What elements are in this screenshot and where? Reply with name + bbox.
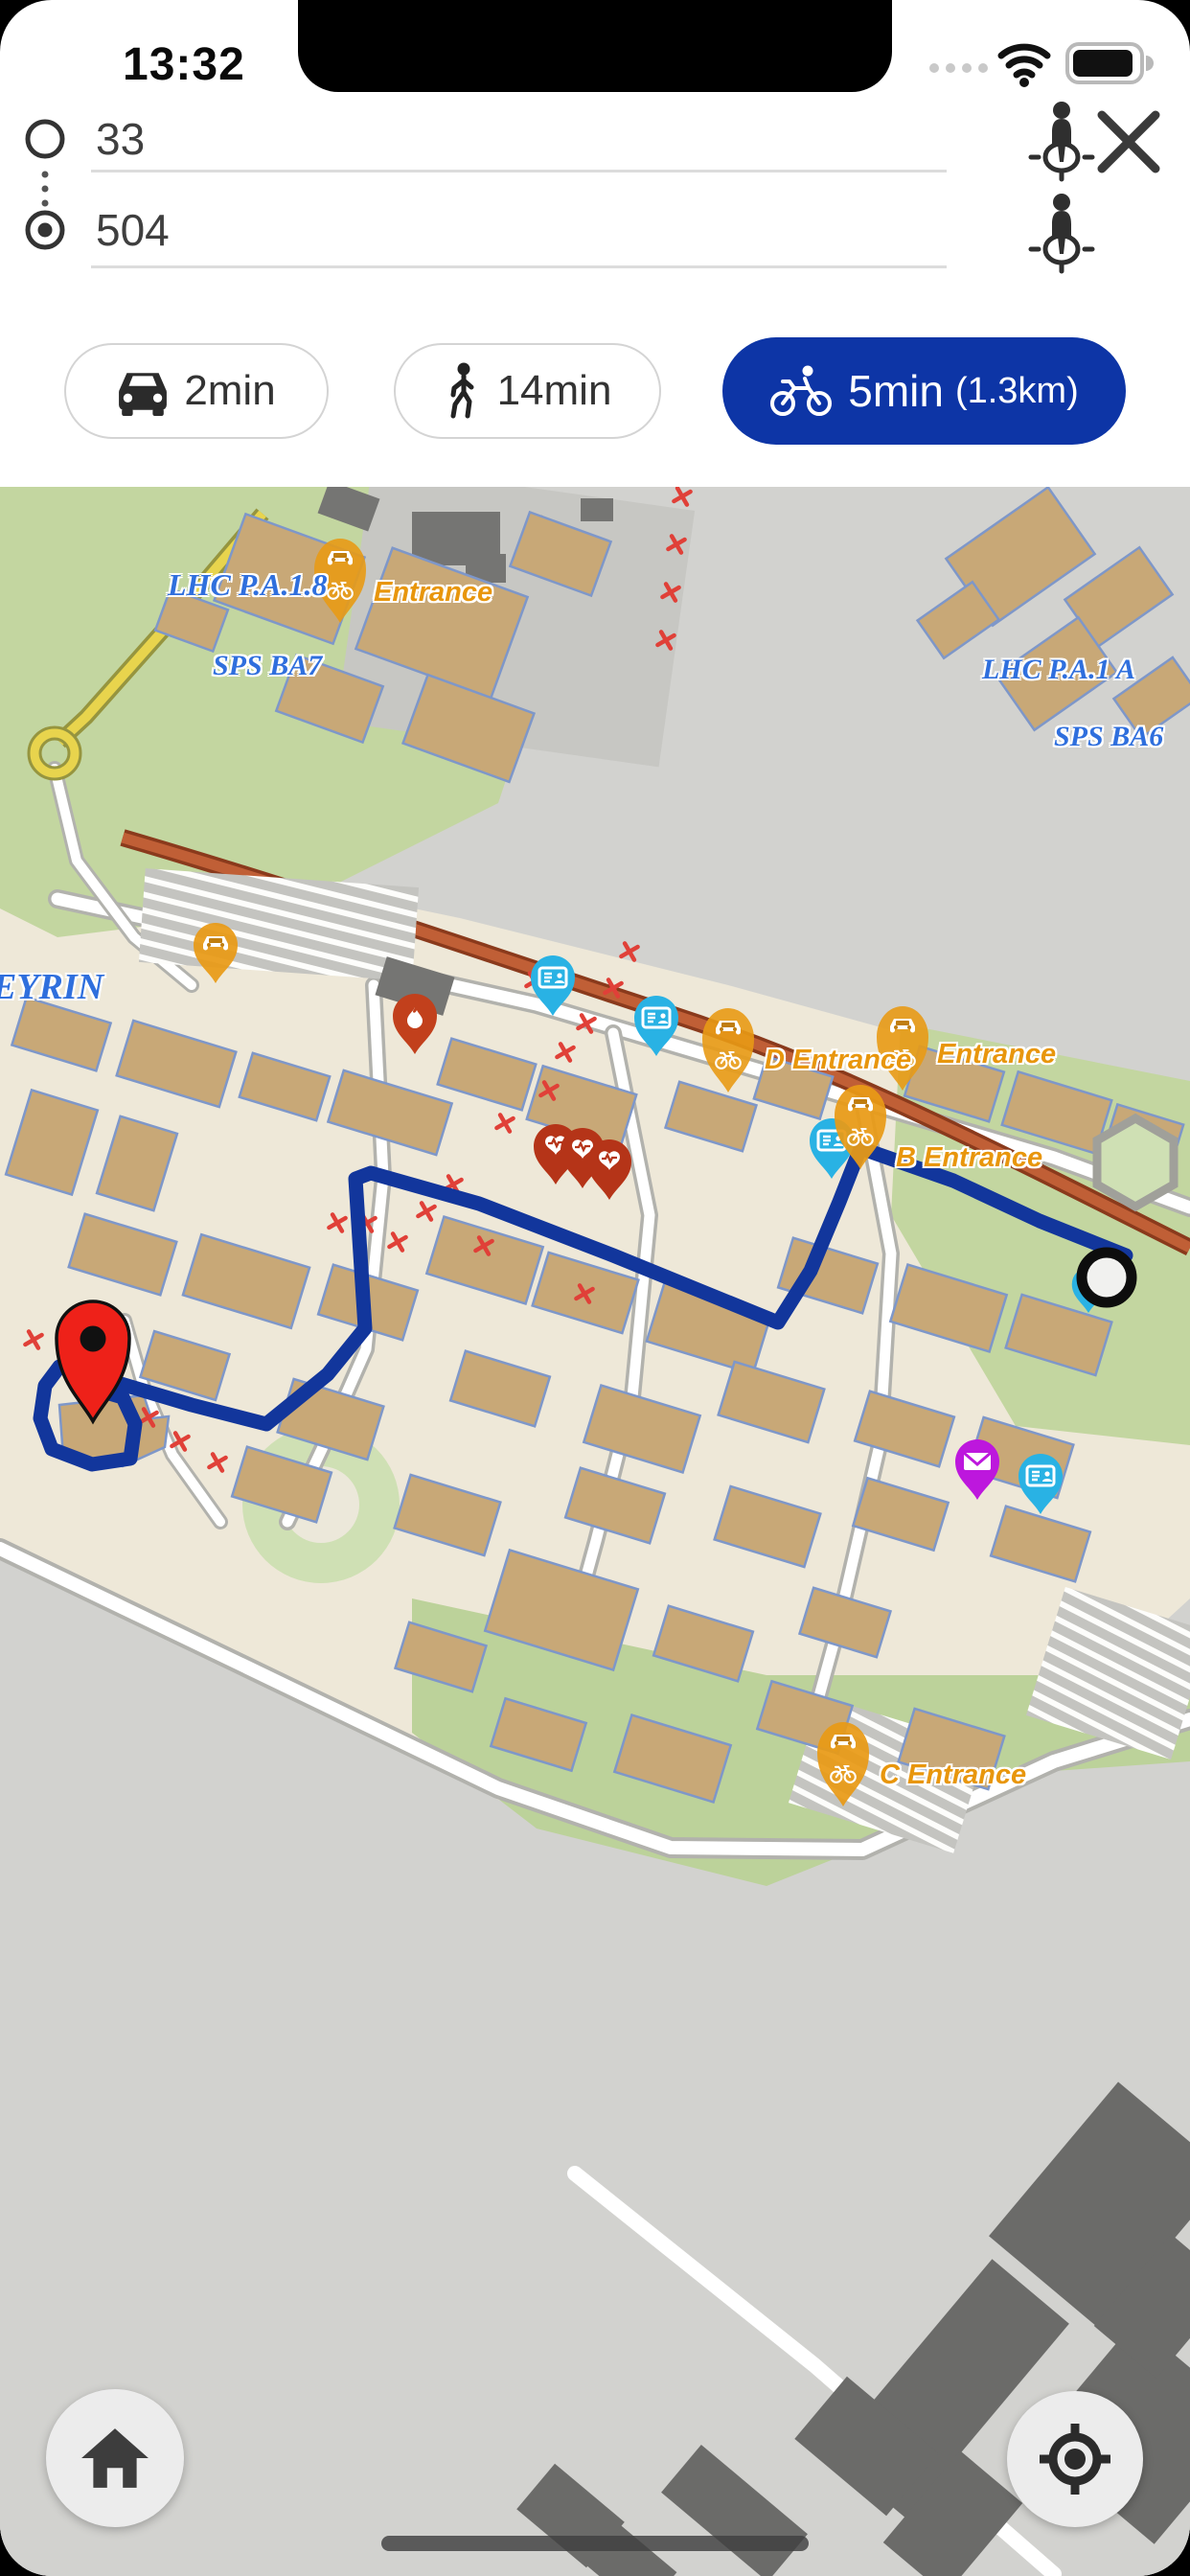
destination-input[interactable] xyxy=(96,198,939,262)
home-icon xyxy=(80,2426,150,2490)
locate-button[interactable] xyxy=(1007,2391,1143,2527)
destination-locate-person-button[interactable] xyxy=(1027,190,1096,274)
campus-map[interactable]: LHC P.A.1.8 Entrance SPS BA7 LHC P.A.1 A… xyxy=(0,487,1190,2576)
mode-bike-button[interactable]: 5min (1.3km) xyxy=(722,337,1126,445)
map-label-c-entrance: C Entrance xyxy=(880,1759,1026,1791)
origin-input[interactable] xyxy=(96,107,939,171)
close-icon xyxy=(1102,115,1156,169)
close-button[interactable] xyxy=(1090,103,1167,180)
mode-car-label: 2min xyxy=(184,367,275,415)
walk-icon xyxy=(444,362,482,420)
home-button[interactable] xyxy=(46,2389,184,2527)
origin-locate-person-button[interactable] xyxy=(1027,98,1096,182)
origin-underline xyxy=(91,170,947,172)
mode-walk-label: 14min xyxy=(497,367,612,415)
mode-bike-distance: (1.3km) xyxy=(955,371,1079,412)
map-label-entrance: Entrance xyxy=(374,577,492,609)
locate-crosshair-icon xyxy=(1037,2421,1113,2497)
map-label-sps-ba6: SPS BA6 xyxy=(1054,721,1163,753)
cellular-dots-icon xyxy=(929,63,988,73)
phone-screen: 13:32 xyxy=(0,0,1190,2576)
home-indicator[interactable] xyxy=(381,2536,809,2551)
bike-icon xyxy=(769,365,833,417)
map-label-entrance-right: Entrance xyxy=(937,1039,1056,1070)
mode-bike-label: 5min xyxy=(848,365,944,417)
map-label-lhc-pa1: LHC P.A.1 A xyxy=(982,654,1135,686)
map-label-sps-ba7: SPS BA7 xyxy=(213,650,322,682)
phone-notch xyxy=(298,0,892,92)
battery-icon xyxy=(1065,42,1154,84)
locate-person-icon xyxy=(1031,102,1092,179)
map-label-d-entrance: D Entrance xyxy=(765,1045,911,1076)
map-label-lhc-pa18: LHC P.A.1.8 xyxy=(168,567,328,603)
hexagon-building xyxy=(1097,1118,1174,1207)
map-label-b-entrance: B Entrance xyxy=(896,1142,1042,1174)
status-time: 13:32 xyxy=(123,38,245,91)
origin-circle-icon xyxy=(28,122,62,156)
route-glyphs xyxy=(19,113,77,276)
mode-car-button[interactable]: 2min xyxy=(64,343,329,439)
parking-lot xyxy=(139,868,419,981)
car-icon xyxy=(117,365,169,417)
destination-underline xyxy=(91,265,947,268)
wifi-icon xyxy=(995,38,1054,88)
mode-walk-button[interactable]: 14min xyxy=(394,343,661,439)
locate-person-icon xyxy=(1031,194,1092,271)
map-label-meyrin: EYRIN xyxy=(0,966,103,1008)
